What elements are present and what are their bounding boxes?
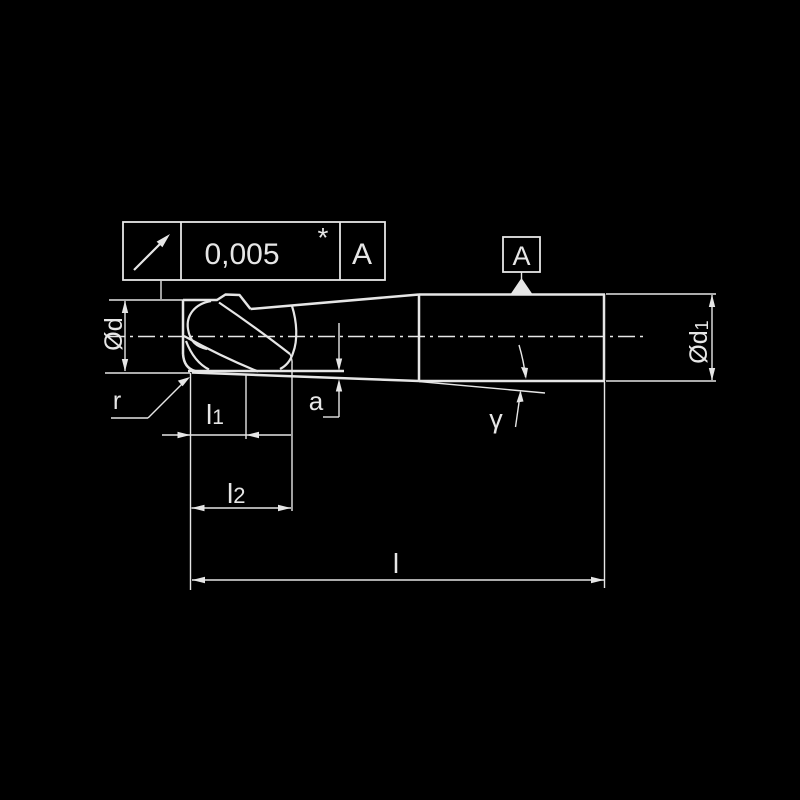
label-length-1-sub: 1 [212,406,224,429]
label-tip-diameter: Ød [100,317,128,350]
technical-drawing-end-mill: 0,005 * A A Ød Ød1 r [0,0,800,800]
tolerance-star: * [318,222,329,253]
label-length-2: l2 [227,478,245,509]
label-corner-radius: r [113,387,121,415]
tolerance-datum-ref: A [352,238,372,271]
tolerance-value: 0,005 [204,238,279,271]
label-shank-diameter-sub: 1 [692,320,712,330]
label-taper-offset: a [309,386,324,416]
label-taper-angle: γ [489,404,503,434]
label-overall-length: l [393,548,399,579]
datum-label: A [512,241,530,271]
label-length-2-sub: 2 [233,483,245,508]
label-shank-diameter-main: Ød [685,330,713,363]
